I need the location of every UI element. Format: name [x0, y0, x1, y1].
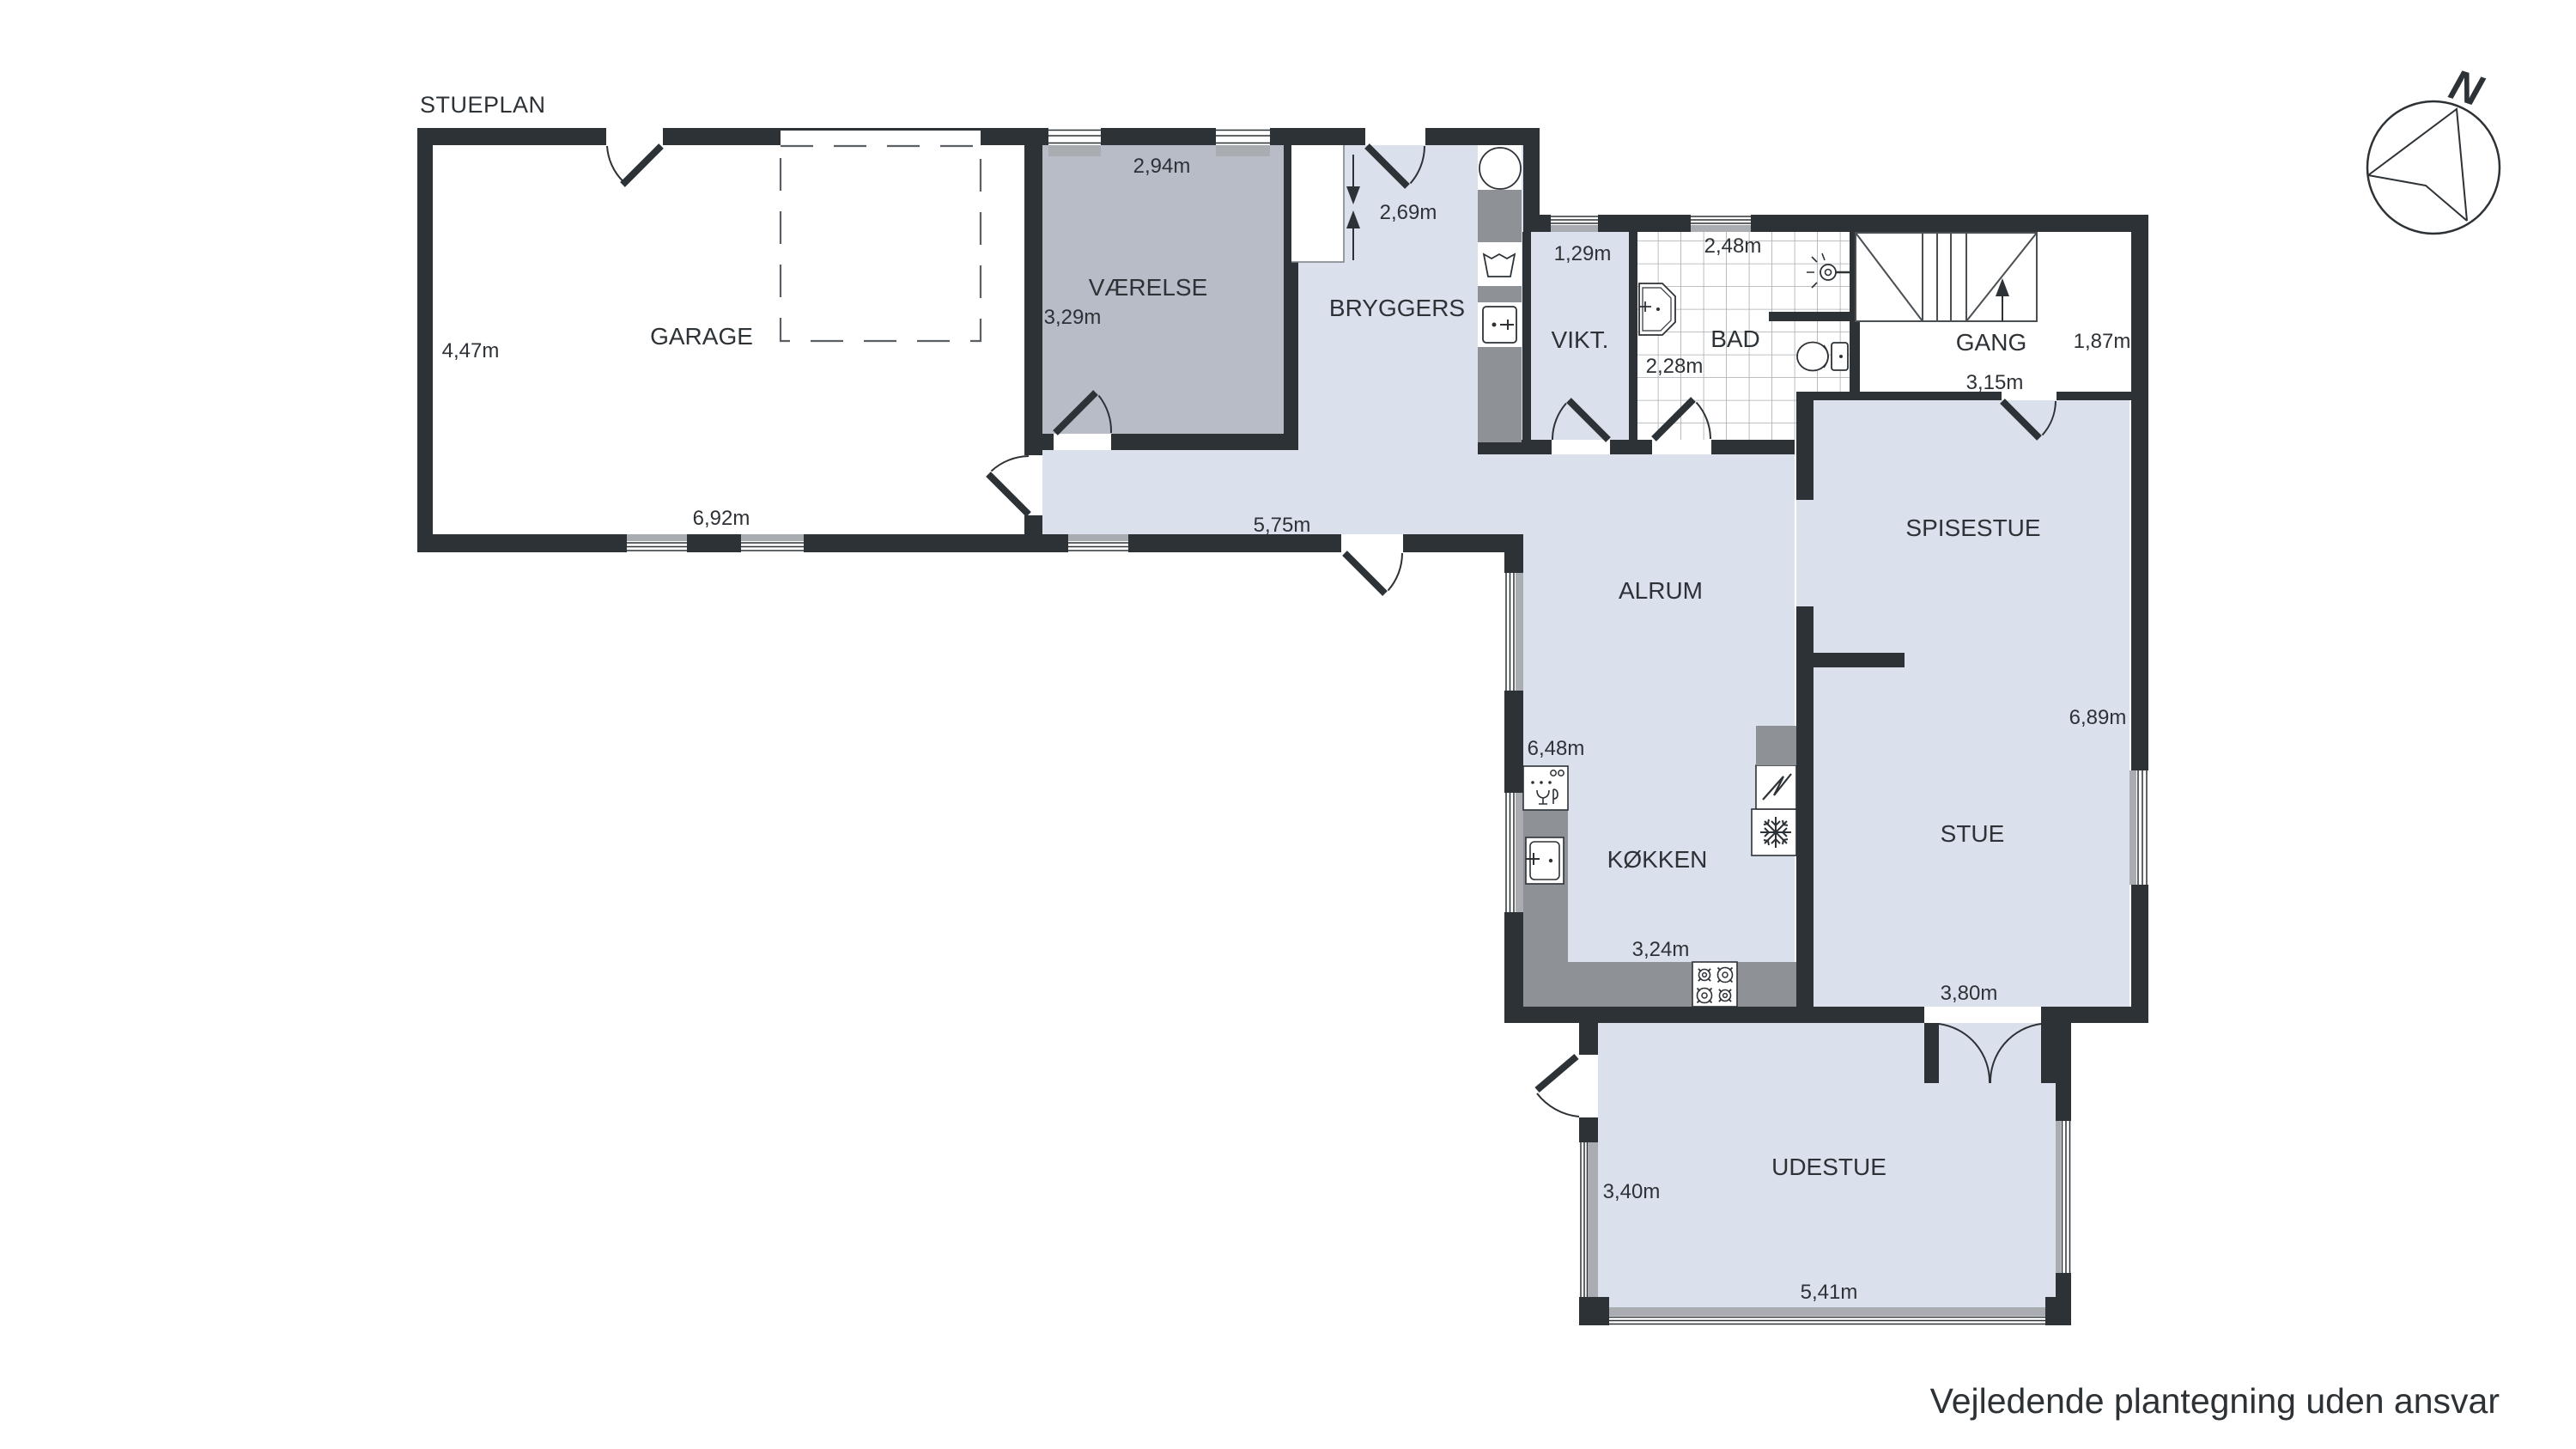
svg-text:3,15m: 3,15m — [1966, 371, 2024, 394]
svg-text:GARAGE: GARAGE — [650, 323, 753, 350]
svg-text:2,94m: 2,94m — [1133, 155, 1191, 178]
svg-text:KØKKEN: KØKKEN — [1607, 846, 1708, 873]
svg-text:1,29m: 1,29m — [1554, 242, 1612, 265]
svg-text:BRYGGERS: BRYGGERS — [1329, 295, 1465, 321]
svg-text:2,69m: 2,69m — [1380, 201, 1437, 224]
svg-text:3,80m: 3,80m — [1941, 982, 1998, 1005]
svg-text:GANG: GANG — [1956, 329, 2026, 356]
svg-text:3,24m: 3,24m — [1632, 938, 1690, 961]
svg-text:6,48m: 6,48m — [1528, 737, 1585, 760]
svg-text:VIKT.: VIKT. — [1552, 326, 1609, 353]
svg-text:STUEPLAN: STUEPLAN — [420, 92, 546, 118]
svg-text:3,40m: 3,40m — [1603, 1180, 1661, 1203]
svg-text:6,89m: 6,89m — [2069, 706, 2127, 729]
svg-text:STUE: STUE — [1941, 820, 2005, 847]
svg-text:2,48m: 2,48m — [1704, 234, 1762, 258]
svg-text:Vejledende plantegning uden an: Vejledende plantegning uden ansvar — [1930, 1381, 2500, 1421]
svg-text:VÆRELSE: VÆRELSE — [1089, 274, 1208, 301]
svg-text:UDESTUE: UDESTUE — [1771, 1154, 1886, 1180]
svg-text:4,47m: 4,47m — [442, 339, 500, 362]
svg-text:1,87m: 1,87m — [2074, 330, 2131, 353]
svg-text:5,41m: 5,41m — [1801, 1281, 1858, 1304]
svg-text:3,29m: 3,29m — [1044, 306, 1102, 329]
svg-text:BAD: BAD — [1710, 326, 1760, 352]
svg-text:6,92m: 6,92m — [693, 507, 750, 530]
svg-text:5,75m: 5,75m — [1254, 514, 1311, 537]
svg-text:ALRUM: ALRUM — [1619, 577, 1703, 604]
svg-text:SPISESTUE: SPISESTUE — [1905, 514, 2040, 541]
svg-text:2,28m: 2,28m — [1646, 355, 1704, 378]
